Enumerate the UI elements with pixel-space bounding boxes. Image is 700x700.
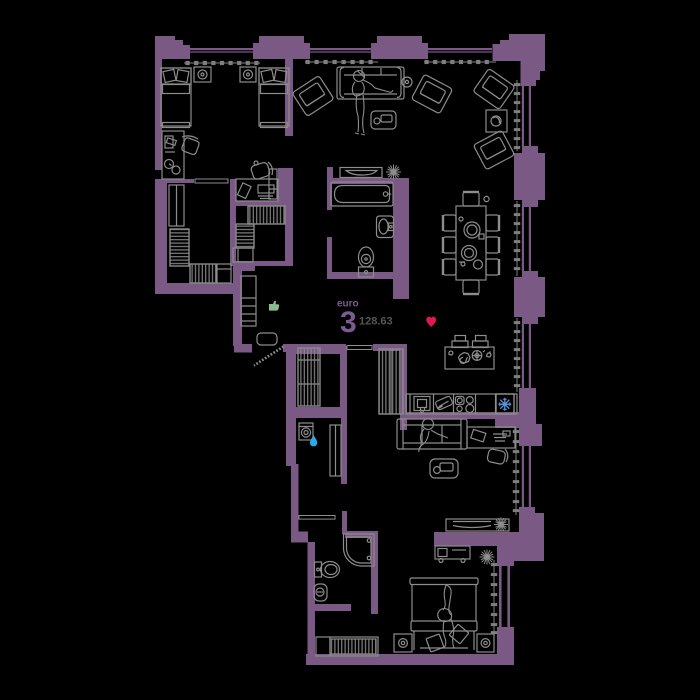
- svg-text:3: 3: [340, 306, 357, 339]
- svg-text:128.63: 128.63: [359, 316, 393, 328]
